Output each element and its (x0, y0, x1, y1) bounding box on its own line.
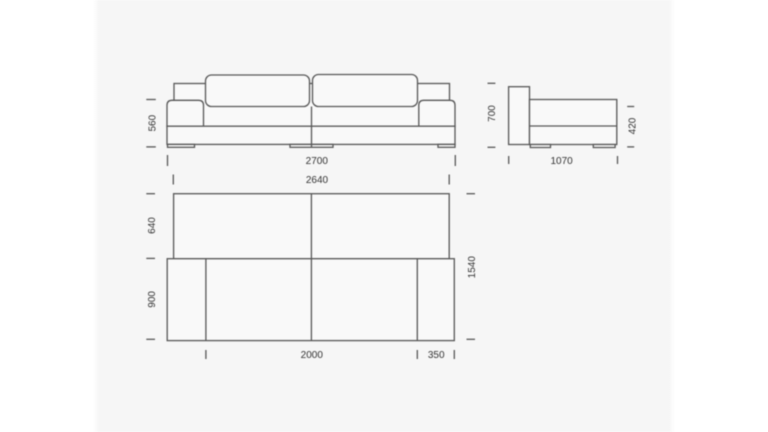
svg-text:420: 420 (628, 117, 639, 134)
svg-text:2000: 2000 (301, 350, 324, 361)
svg-text:2700: 2700 (306, 156, 329, 167)
svg-text:560: 560 (148, 114, 159, 131)
svg-text:2640: 2640 (306, 175, 329, 186)
svg-text:350: 350 (428, 350, 445, 361)
svg-text:1540: 1540 (467, 256, 478, 279)
svg-text:900: 900 (147, 291, 158, 308)
svg-text:700: 700 (487, 105, 498, 122)
svg-text:1070: 1070 (550, 156, 573, 167)
svg-text:640: 640 (147, 217, 158, 234)
